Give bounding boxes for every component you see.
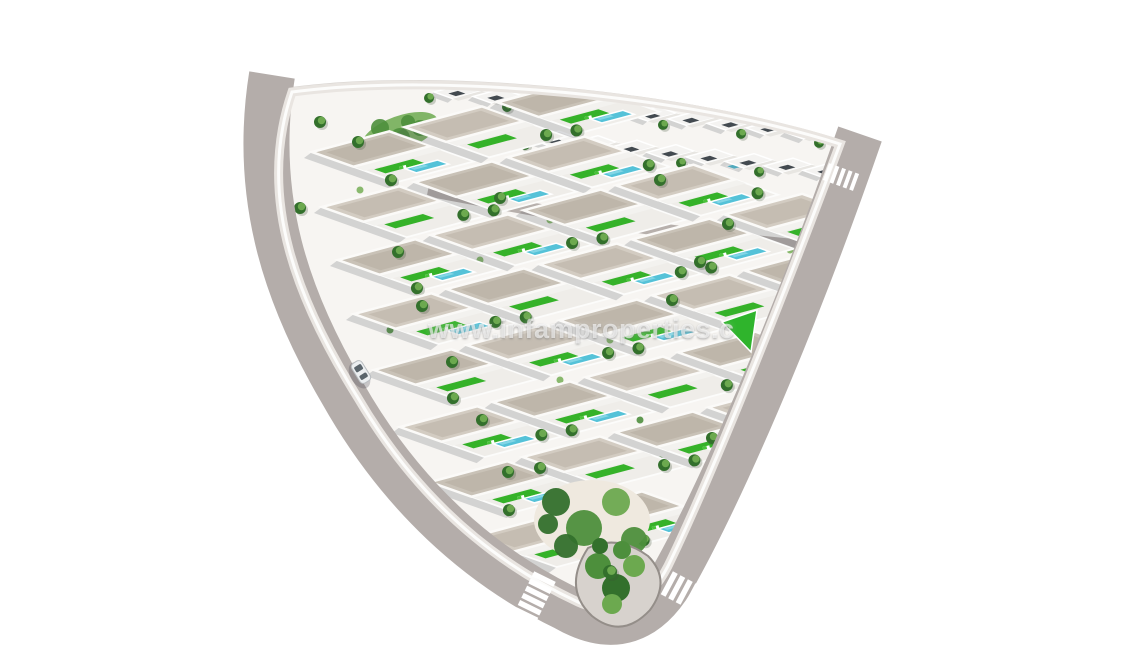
garden-palm-canopy <box>554 534 578 558</box>
garden-palm-canopy <box>602 488 630 516</box>
shrub <box>357 187 364 194</box>
aerial-render-svg <box>0 0 1130 665</box>
garden-palm-canopy <box>542 488 570 516</box>
garden-palm-canopy <box>538 514 558 534</box>
aerial-render: www.infamproperties.c <box>0 0 1130 665</box>
shrub <box>637 417 644 424</box>
